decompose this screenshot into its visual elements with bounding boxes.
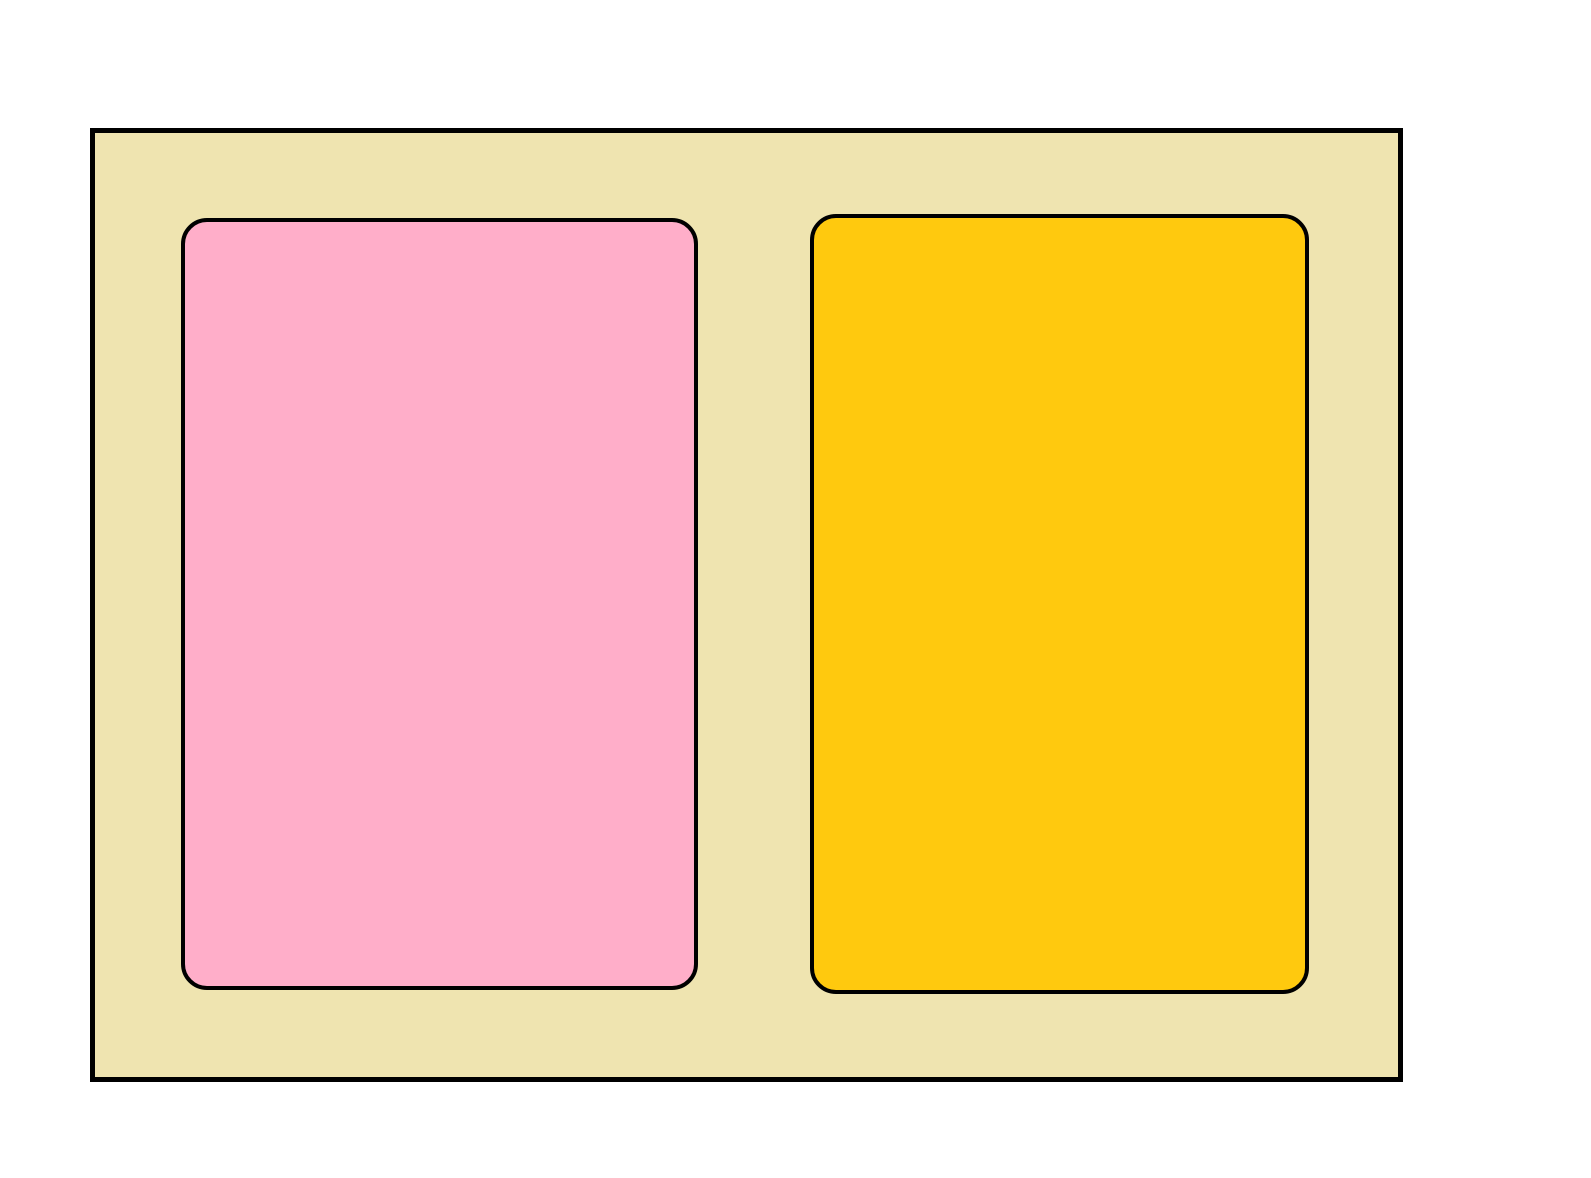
pink-rounded-rectangle [181, 218, 698, 990]
yellow-rounded-rectangle [810, 214, 1309, 994]
outer-beige-rectangle [90, 128, 1403, 1082]
drawing-canvas [0, 0, 1591, 1178]
